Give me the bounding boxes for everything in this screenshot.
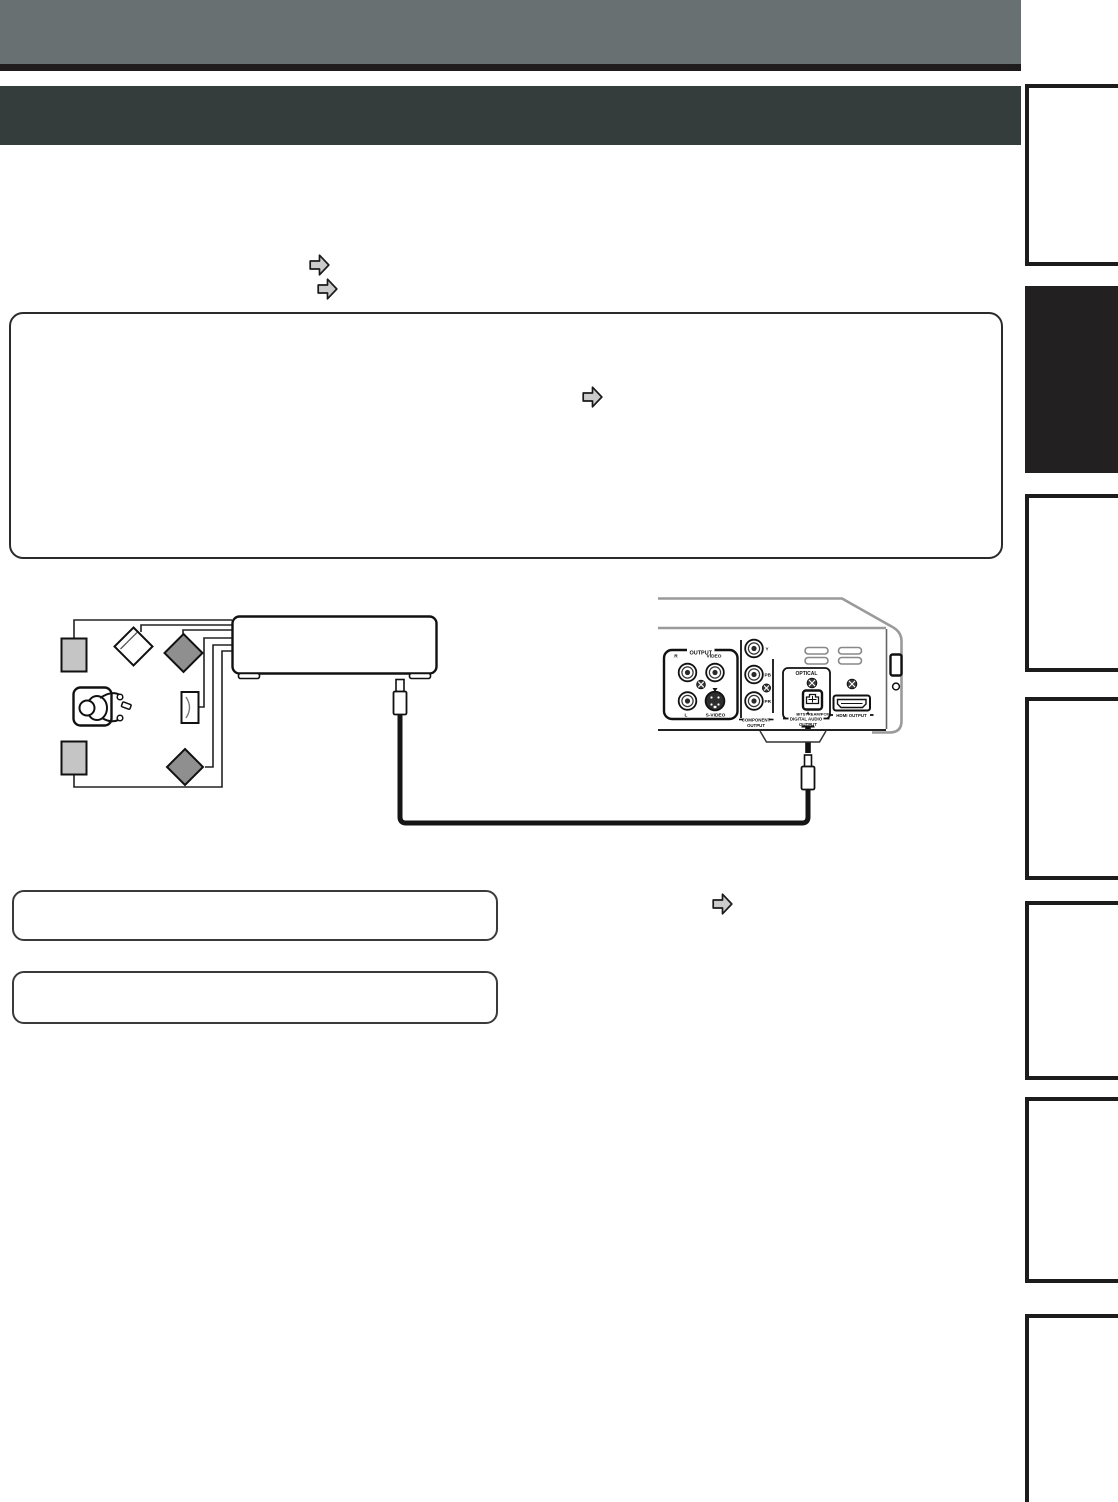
screw-icon [847,679,857,689]
center-rear-speaker-icon [167,749,203,785]
rca-jack-pr-icon [745,692,763,710]
component-caption-2: OUTPUT [747,723,765,728]
hdmi-output-group: HDMI OUTPUT [830,679,874,718]
note-box [9,312,1003,559]
page-ref-arrow-icon [309,254,330,276]
callout-box-1 [12,890,498,941]
page-ref-arrow-icon [317,278,338,300]
optical-jack-icon [803,691,822,710]
vent-slots-icon [805,648,862,665]
hdmi-label: HDMI OUTPUT [836,713,867,718]
section-title-bar [0,86,1021,145]
component-output-group: Y PB PR COMPONENT OUTPUT [739,640,774,728]
av-output-group: OUTPUT [664,646,738,720]
jack-label-l: L [685,713,688,719]
chapter-tab-4 [1025,697,1118,880]
chapter-tab-1 [1025,84,1118,266]
jack-label-pb: PB [765,673,772,678]
callout-box-2 [12,971,498,1024]
panel-foot-notch [760,731,826,742]
chapter-tab-2-active [1025,286,1118,473]
rca-jack-r-icon [679,664,697,682]
digital-caption-2: DIGITAL AUDIO [790,717,823,722]
component-caption-1: COMPONENT [742,718,771,723]
digital-caption-3: OUTPUT [799,722,817,727]
subwoofer-icon [182,692,199,723]
jack-label-r: R [674,654,678,660]
jack-label-y: Y [766,647,769,652]
chapter-tab-3 [1025,494,1118,672]
chapter-tab-7 [1025,1314,1118,1502]
optical-plug-amp-end-icon [394,680,407,715]
svideo-jack-icon [706,688,725,710]
listener-icon [74,688,132,726]
manual-page: OUTPUT [0,0,1118,1502]
chapter-tab-5 [1025,901,1118,1080]
page-ref-arrow-icon [712,893,733,915]
jack-label-pr: PR [765,699,772,704]
player-rear-panel: OUTPUT [658,599,902,743]
rca-jack-video-icon [706,664,724,682]
rca-jack-l-icon [679,692,697,710]
rca-jack-y-icon [745,640,763,658]
surround-speaker-left-icon [62,639,87,672]
jack-label-svideo: S-VIDEO [706,713,726,719]
page-ref-arrow-icon [582,386,603,408]
optical-plug-player-end-icon [802,755,815,790]
page-header-band [0,0,1021,64]
screw-icon [697,680,706,689]
chapter-tab-6 [1025,1097,1118,1283]
av-amplifier-icon [233,617,437,679]
jack-label-video: VIDEO [707,654,722,660]
digital-audio-output-group: OPTICAL BITSTREAM/PCM DIGITAL AUDIO [783,668,830,727]
surround-speaker-right-icon [62,742,87,775]
optical-label: OPTICAL [796,671,818,677]
audio-connection-diagram: OUTPUT [0,580,1020,860]
rca-jack-pb-icon [745,666,763,684]
front-speaker-left-icon [115,628,153,666]
side-screw-icon [893,683,900,690]
header-divider-rule [0,64,1021,71]
front-speaker-right-icon [165,634,203,672]
ac-inlet-icon [891,655,902,676]
panel-top-contour [658,599,893,628]
screw-icon [807,678,817,688]
hdmi-jack-icon [834,696,871,711]
screw-icon [763,684,771,692]
